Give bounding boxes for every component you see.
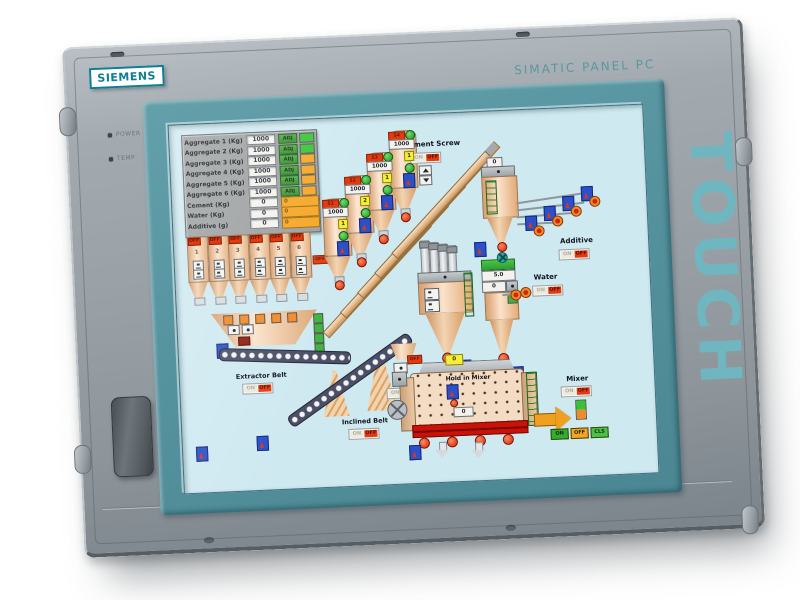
bin-off-button[interactable]: OFF [290, 233, 303, 242]
aggregate-bin-5: OFF 5 [268, 233, 290, 303]
left-hinge-knob [59, 107, 77, 137]
hopper-alarm-box [238, 336, 250, 346]
level-sensor-icon [403, 173, 416, 189]
bin-gate-button[interactable] [275, 266, 286, 276]
cement-level-bar [463, 272, 474, 316]
adj-button[interactable]: ADJ [278, 133, 297, 144]
cement-gate-button[interactable] [425, 300, 441, 313]
level-sensor-icon [337, 241, 350, 257]
silo-value-field[interactable]: 1000 [388, 139, 414, 150]
hopper-gate-lamp [239, 314, 249, 324]
touchscreen[interactable]: Aggregate 1 (Kg) 1000 ADJ Aggregate 2 (K… [168, 104, 660, 495]
setpoint-field[interactable]: 0 [250, 218, 279, 229]
hopper-run-lamp [314, 333, 324, 343]
silo-sequence-badge: 1 [382, 173, 392, 183]
additive-pump-icon [552, 215, 563, 226]
silo-outlet-valve-icon[interactable] [401, 212, 411, 222]
mounting-screw [204, 537, 214, 543]
bin-off-button[interactable]: OFF [188, 237, 201, 246]
mixer-off-button[interactable]: OFF [577, 387, 590, 395]
additive-controls: ON OFF [558, 248, 589, 260]
bin-off-button[interactable]: OFF [229, 236, 242, 245]
silo-cone [391, 188, 418, 209]
bin-number: 6 [290, 245, 309, 252]
bin-gate-button[interactable] [295, 265, 306, 275]
bin-cone [270, 279, 290, 295]
cement-hopper-cone [425, 312, 467, 354]
bin-cone [291, 278, 311, 294]
siemens-logo: SIEMENS [89, 65, 164, 89]
gate-off-button[interactable]: OFF [570, 427, 588, 439]
top-vent-slot [516, 32, 530, 38]
additive-on-button[interactable]: ON [561, 251, 574, 259]
bin-number: 3 [228, 247, 247, 254]
bin-cone [230, 280, 250, 296]
extractor-off-button[interactable]: OFF [258, 384, 271, 392]
mounting-screw [506, 525, 516, 531]
silo-value-field[interactable]: 1000 [344, 184, 370, 195]
silo-sequence-badge: 2 [360, 196, 370, 206]
gate-cls-button[interactable]: CLS [590, 426, 608, 438]
setpoint-field[interactable]: 1000 [248, 176, 277, 187]
bin-gate-button[interactable] [234, 267, 245, 277]
hopper-gate-lamp [287, 312, 297, 322]
adj-button[interactable]: ADJ [279, 154, 298, 165]
mixer-wheel-icon [503, 434, 514, 445]
mixer-gate-buttons: ON OFF CLS [550, 426, 608, 440]
cement-silo-s2: S2 1000 2 [344, 175, 375, 278]
bin-outlet [215, 296, 226, 304]
cement-gate-button[interactable] [424, 288, 440, 301]
temp-led-icon [109, 157, 113, 161]
hopper-sensor [241, 324, 253, 335]
water-hopper-cone [490, 319, 515, 354]
cement-silo-s1: S1 1000 1 [322, 198, 353, 301]
power-led-label: POWER [116, 130, 141, 138]
status-lamp [299, 133, 314, 144]
water-on-button[interactable]: ON [534, 287, 547, 295]
batch-setpoint-table: Aggregate 1 (Kg) 1000 ADJ Aggregate 2 (K… [181, 129, 321, 238]
extractor-belt-controls: ON OFF [242, 382, 273, 394]
silo-outlet-valve-icon[interactable] [357, 257, 367, 267]
cement-silo-s4: S4 1000 1 [388, 130, 419, 233]
touch-branding: TOUCH [676, 130, 758, 507]
water-pump-icon [520, 287, 531, 298]
actual-value: 0 [282, 216, 320, 229]
mixer-motor-box [392, 371, 408, 387]
setpoint-field[interactable]: 1000 [247, 166, 276, 177]
gate-on-button[interactable]: ON [550, 428, 568, 440]
bin-outlet [194, 297, 205, 305]
bin-off-button[interactable]: OFF [269, 234, 282, 243]
inclined-belt-controls: ON OFF [348, 428, 379, 440]
level-sensor-icon [474, 242, 487, 258]
adj-button[interactable]: ADJ [279, 165, 298, 176]
bin-gate-button[interactable] [213, 268, 224, 278]
row-label: Additive (g) [188, 221, 250, 231]
mixer-on-button[interactable]: ON [563, 388, 576, 396]
bin-off-button[interactable]: OFF [208, 237, 221, 246]
left-hinge-knob [74, 445, 92, 475]
bin-off-button[interactable]: OFF [249, 235, 262, 244]
aggregate-bin-2: OFF 2 [207, 235, 229, 305]
aggregate-bin-4: OFF 4 [248, 233, 270, 303]
bin-outlet [256, 295, 267, 303]
hopper-gate-lamp [223, 315, 233, 325]
silo-value-field[interactable]: 1000 [366, 161, 392, 172]
additive-pump-icon [533, 225, 544, 236]
inclined-off-button[interactable]: OFF [364, 430, 377, 438]
increase-button[interactable] [419, 165, 432, 176]
setpoint-field[interactable]: 1000 [248, 187, 277, 198]
status-lamp [300, 154, 315, 165]
level-sensor-icon [256, 436, 269, 452]
silo-sequence-badge: 1 [338, 219, 348, 229]
mixer-state-indicator [575, 399, 587, 419]
mixer-sensor-icon [446, 384, 459, 400]
bin-gate-button[interactable] [193, 269, 204, 279]
decrease-button[interactable] [419, 175, 432, 186]
simatic-panel-pc: SIEMENS POWER TEMP SIMATIC PANEL PC TOUC… [62, 17, 765, 558]
level-sensor-icon [196, 446, 209, 462]
adj-button[interactable]: ADJ [279, 144, 298, 155]
water-label: Water [534, 273, 558, 282]
extractor-on-button[interactable]: ON [244, 385, 257, 393]
aggregate-bin-1: OFF 1 [187, 236, 209, 306]
bin-outlet [235, 295, 246, 303]
right-hinge-knob [741, 505, 759, 535]
cement-silo-s3: S3 1000 1 [366, 152, 397, 255]
level-sensor-icon [381, 195, 394, 211]
additive-label: Additive [560, 236, 593, 245]
additive-hopper-cone [487, 217, 514, 244]
bin-cone [250, 279, 270, 295]
bin-number: 2 [208, 248, 227, 255]
power-led-row: POWER [108, 130, 141, 138]
water-controls: ON OFF [532, 284, 563, 296]
bin-outlet [276, 294, 287, 302]
additive-off-button[interactable]: OFF [575, 250, 588, 258]
bin-outlet [297, 293, 308, 301]
inclined-belt-label: Inclined Belt [342, 416, 388, 426]
aggregate-bin-6: OFF 6 [289, 232, 311, 302]
cement-screw-off-button[interactable]: OFF [426, 154, 439, 162]
cement-screw-controls: ON OFF [410, 152, 441, 164]
status-lamp [299, 143, 314, 154]
transfer-off-tag[interactable]: OFF [407, 355, 422, 365]
hopper-gate-lamp [255, 314, 265, 324]
bin-gate-button[interactable] [254, 267, 265, 277]
model-label: SIMATIC PANEL PC [514, 57, 656, 77]
setpoint-field[interactable]: 0 [249, 197, 278, 208]
temp-led-label: TEMP [117, 154, 136, 162]
bin-number: 1 [187, 249, 206, 256]
level-sensor-icon [409, 445, 422, 461]
usb-port-cover[interactable] [111, 396, 155, 478]
silo-outlet-valve-icon[interactable] [335, 280, 345, 290]
status-lamp [301, 185, 316, 196]
additive-outlet-valve-icon[interactable] [497, 242, 507, 252]
bin-cone [189, 282, 209, 298]
bin-number: 5 [269, 246, 288, 253]
hopper-run-lamp [313, 313, 323, 323]
adj-button[interactable]: ADJ [280, 175, 299, 186]
silo-value-field[interactable]: 1000 [322, 207, 348, 218]
mixer-motor-fan-icon [387, 399, 408, 420]
setpoint-field[interactable]: 1000 [247, 145, 276, 156]
bin-cone [209, 281, 229, 297]
mixer-controls: ON OFF [561, 385, 592, 397]
level-sensor-icon [359, 218, 372, 234]
additive-level-bar [485, 180, 498, 214]
discharge-chute-icon [435, 442, 450, 459]
water-off-button[interactable]: OFF [548, 286, 561, 294]
power-led-icon [108, 133, 112, 137]
additive-pump-icon [571, 205, 582, 216]
mixer-inlet-value: 0 [445, 354, 463, 366]
status-lamp [300, 164, 315, 175]
discharge-chute-icon [471, 442, 486, 459]
silo-outlet-valve-icon[interactable] [379, 234, 389, 244]
extractor-belt-conveyor [219, 348, 351, 364]
additive-pump-icon [589, 196, 600, 207]
aggregate-bin-3: OFF 3 [227, 234, 249, 304]
top-vent-slot [110, 52, 124, 58]
hopper-sensor [227, 325, 239, 336]
silo-sequence-badge: 1 [404, 151, 414, 161]
butterfly-valve-icon[interactable] [497, 252, 508, 263]
temp-led-row: TEMP [109, 154, 136, 162]
setpoint-field[interactable]: 0 [249, 208, 278, 219]
status-lamp [301, 174, 316, 185]
extractor-belt-label: Extractor Belt [236, 371, 287, 381]
hold-value-field: 0 [453, 406, 473, 417]
bin-number: 4 [249, 246, 268, 253]
hopper-gate-lamp [271, 313, 281, 323]
setpoint-field[interactable]: 1000 [246, 134, 275, 145]
inclined-on-button[interactable]: ON [350, 430, 363, 438]
setpoint-field[interactable]: 1000 [247, 155, 276, 166]
mixer-label: Mixer [566, 374, 588, 383]
